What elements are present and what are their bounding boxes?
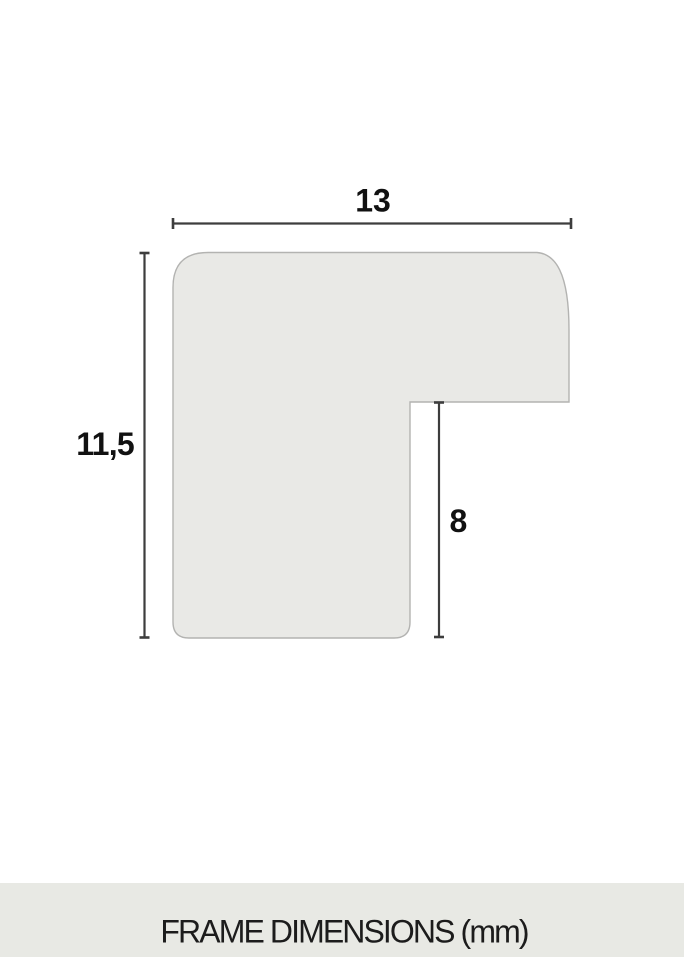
svg-text:13: 13 [355, 183, 391, 219]
svg-text:FRAME DIMENSIONS (mm): FRAME DIMENSIONS (mm) [160, 914, 527, 950]
svg-text:8: 8 [450, 503, 468, 539]
svg-text:11,5: 11,5 [76, 426, 134, 462]
